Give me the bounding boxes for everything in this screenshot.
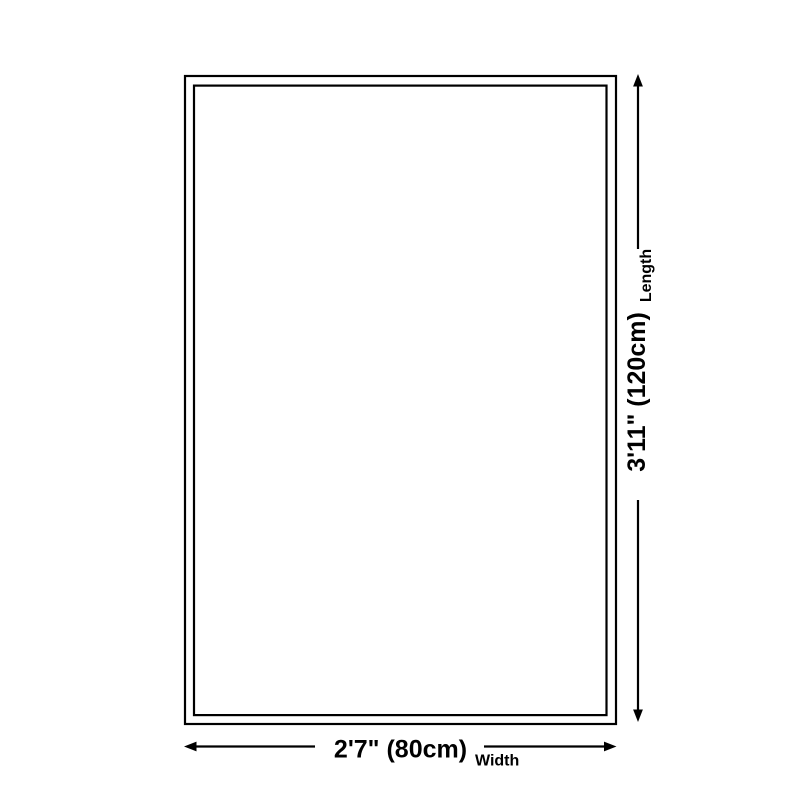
- svg-text:Length: Length: [638, 249, 655, 302]
- svg-text:2'7" (80cm): 2'7" (80cm): [334, 736, 467, 764]
- svg-text:Width: Width: [475, 753, 519, 770]
- svg-text:3'11" (120cm): 3'11" (120cm): [623, 312, 651, 472]
